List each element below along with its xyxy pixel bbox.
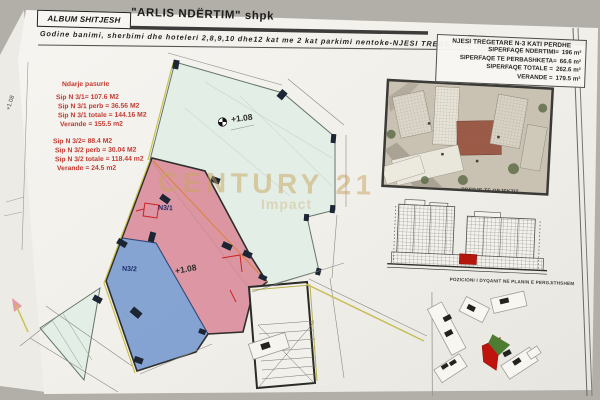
info-table: NJESI TREGETARE N-3 KATI PERDHE SIPERFAQ… xyxy=(435,34,587,88)
unit-n32-label: N3/2 xyxy=(122,266,137,274)
annotation-line-u2-1: Sip N 3/2= 88.4 M2 xyxy=(53,138,112,146)
album-title-label: ALBUM SHITJESH xyxy=(47,14,120,25)
info-row-label: VERANDE = xyxy=(517,73,553,83)
underlay-marks xyxy=(4,197,28,332)
annotation-line-u1-1: Sip N 3/1= 107.6 M2 xyxy=(56,94,119,102)
building-section-drawing xyxy=(387,199,550,274)
annotation-line-u2-2: Sip N 3/2 perb = 30.04 M2 xyxy=(55,147,136,155)
annotation-line-u1-3: Sip N 3/1 totale = 144.16 M2 xyxy=(58,112,147,120)
level-benchmark-icon xyxy=(218,118,226,126)
annotation-title: Ndarje pasurie xyxy=(62,81,109,88)
annotation-line-u1-2: Sip N 3/1 perb = 36.56 M2 xyxy=(58,103,139,111)
annotation-line-u2-3: Sip N 3/2 totale = 118.44 m2 xyxy=(55,156,144,164)
century21-watermark-sub: Impact xyxy=(261,196,312,212)
annotation-line-u2-4: Verande = 24.5 m2 xyxy=(57,165,116,173)
site-plan xyxy=(424,288,543,400)
annotation-line-u1-4: Verande = 155.5 m2 xyxy=(60,121,123,129)
info-row-value: 179.5 m² xyxy=(555,75,580,85)
album-title-box: ALBUM SHITJESH xyxy=(37,10,131,29)
aerial-render xyxy=(381,80,553,195)
unit-n31-label: N3/1 xyxy=(158,205,173,213)
